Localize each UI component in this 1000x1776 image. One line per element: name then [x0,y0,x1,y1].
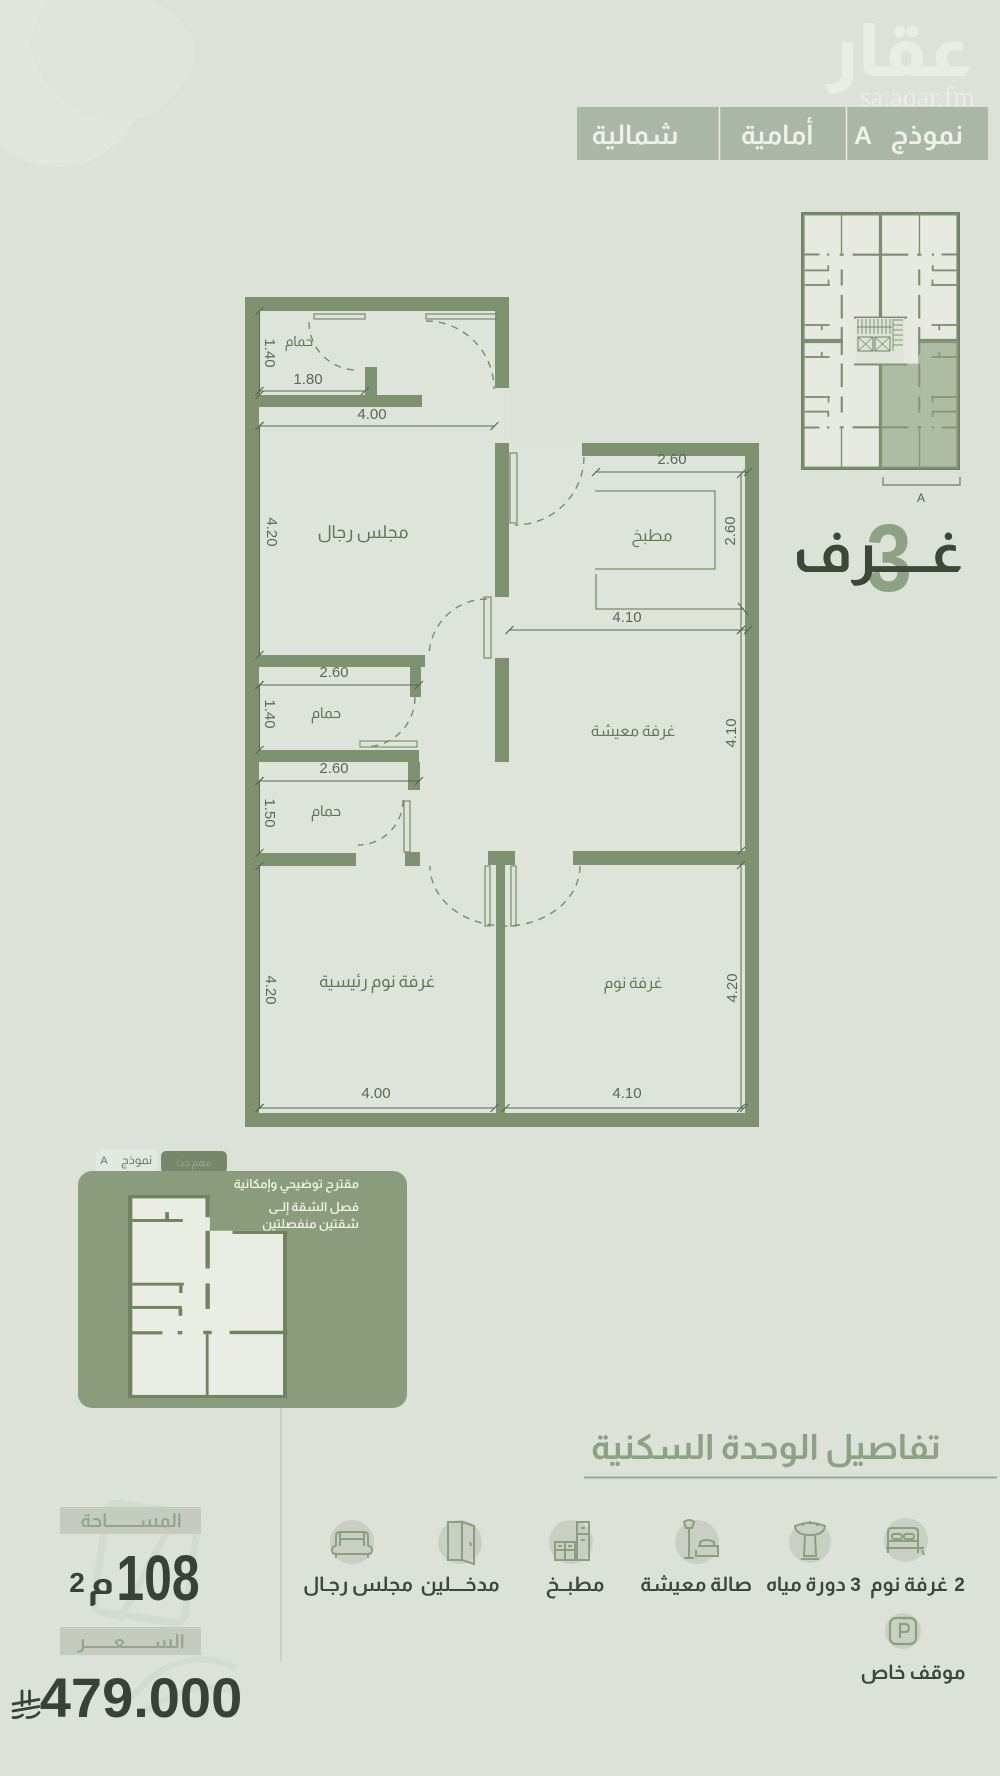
svg-text:2.60: 2.60 [319,664,348,681]
svg-text:2.60: 2.60 [319,760,348,777]
svg-text:1.80: 1.80 [293,371,322,388]
svg-text:1.50: 1.50 [261,798,278,827]
svg-text:4.00: 4.00 [357,406,386,423]
svg-text:4.20: 4.20 [263,517,280,546]
svg-text:2.60: 2.60 [722,516,739,545]
svg-text:4.00: 4.00 [361,1085,390,1102]
svg-text:4.10: 4.10 [612,609,641,626]
svg-text:A: A [917,491,925,505]
svg-text:2: 2 [69,1567,85,1598]
svg-text:4.20: 4.20 [724,973,741,1002]
svg-text:4.20: 4.20 [262,975,279,1004]
svg-text:A: A [854,122,872,150]
svg-text:2.60: 2.60 [657,451,686,468]
svg-text:4.10: 4.10 [612,1085,641,1102]
svg-text:4.10: 4.10 [723,718,740,747]
svg-text:108: 108 [116,1543,199,1614]
svg-text:1.40: 1.40 [261,699,278,728]
svg-text:A: A [100,1155,108,1167]
svg-text:1.40: 1.40 [261,338,278,367]
svg-text:2: 2 [954,1575,965,1596]
svg-text:3: 3 [866,504,912,611]
svg-text:479.000: 479.000 [40,1666,242,1729]
svg-text:3: 3 [850,1575,861,1596]
